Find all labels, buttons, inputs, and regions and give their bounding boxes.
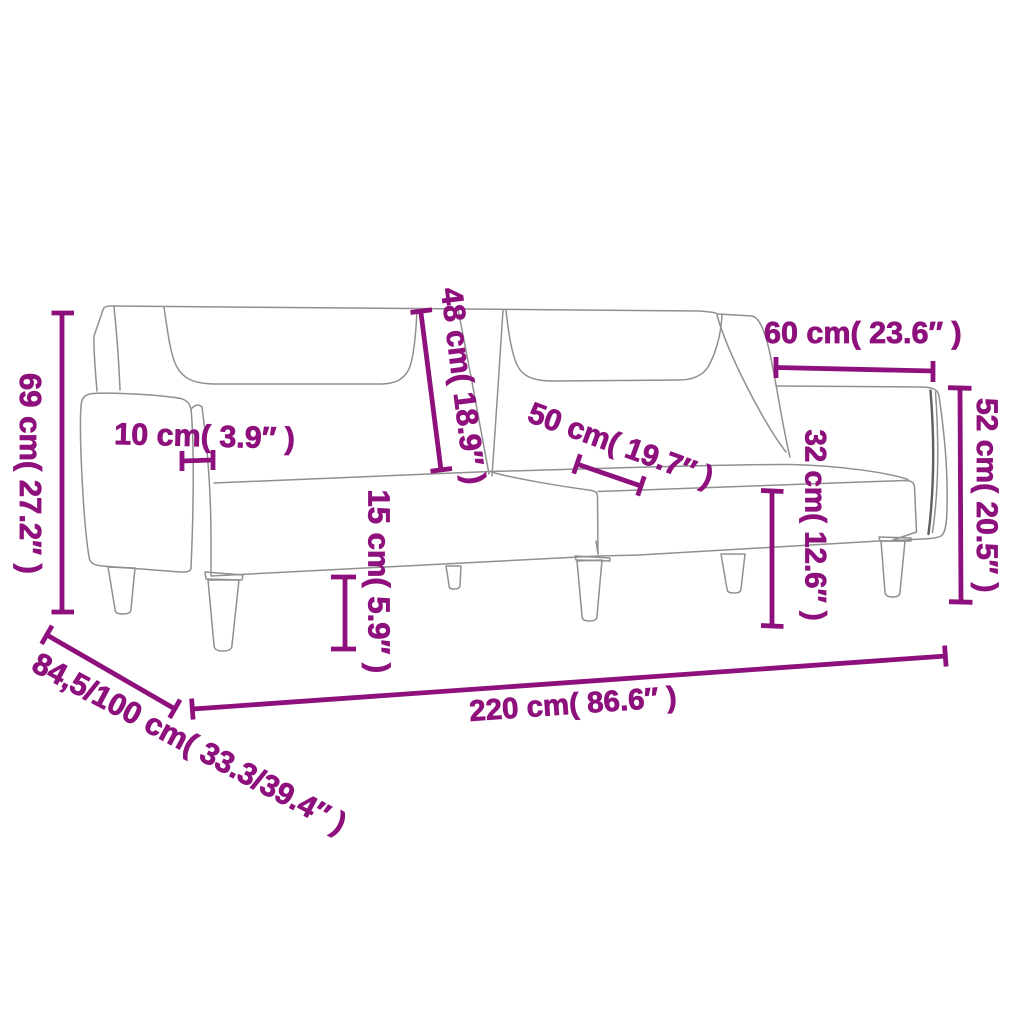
svg-text:10 cm( 3.9″ ): 10 cm( 3.9″ ) [114, 417, 296, 456]
svg-text:69 cm( 27.2″ ): 69 cm( 27.2″ ) [13, 373, 48, 574]
svg-text:32 cm( 12.6″ ): 32 cm( 12.6″ ) [799, 430, 832, 621]
svg-text:52 cm( 20.5″ ): 52 cm( 20.5″ ) [970, 398, 1003, 592]
svg-text:60 cm( 23.6″ ): 60 cm( 23.6″ ) [764, 316, 962, 350]
svg-text:15 cm( 5.9″ ): 15 cm( 5.9″ ) [362, 490, 397, 674]
